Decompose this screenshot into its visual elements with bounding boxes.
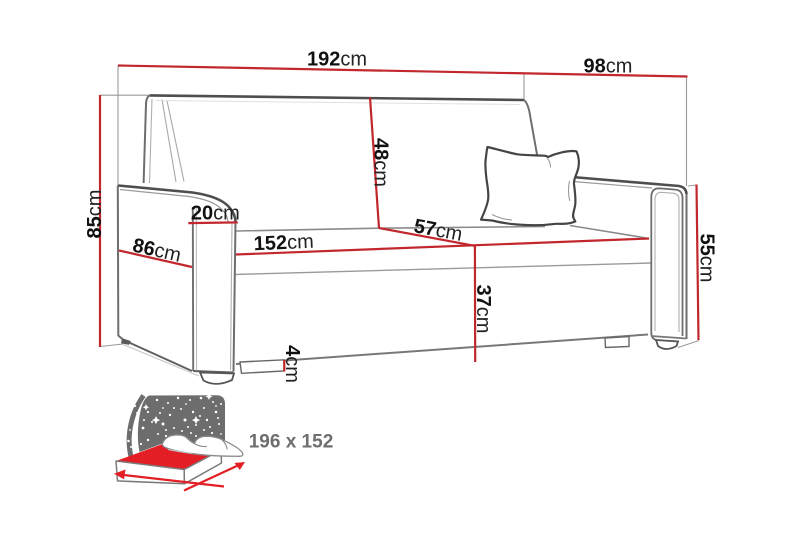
svg-text:86cm: 86cm <box>131 235 184 267</box>
svg-text:85cm: 85cm <box>84 190 106 239</box>
svg-text:98cm: 98cm <box>584 56 633 78</box>
svg-text:4cm: 4cm <box>281 345 303 383</box>
svg-text:196 x 152: 196 x 152 <box>249 432 334 453</box>
svg-text:37cm: 37cm <box>472 285 494 334</box>
svg-text:57cm: 57cm <box>412 215 464 246</box>
svg-text:48cm: 48cm <box>370 138 392 187</box>
svg-text:192cm: 192cm <box>307 49 367 71</box>
svg-text:55cm: 55cm <box>696 234 718 283</box>
svg-text:152cm: 152cm <box>253 231 314 256</box>
svg-text:20cm: 20cm <box>191 203 240 225</box>
